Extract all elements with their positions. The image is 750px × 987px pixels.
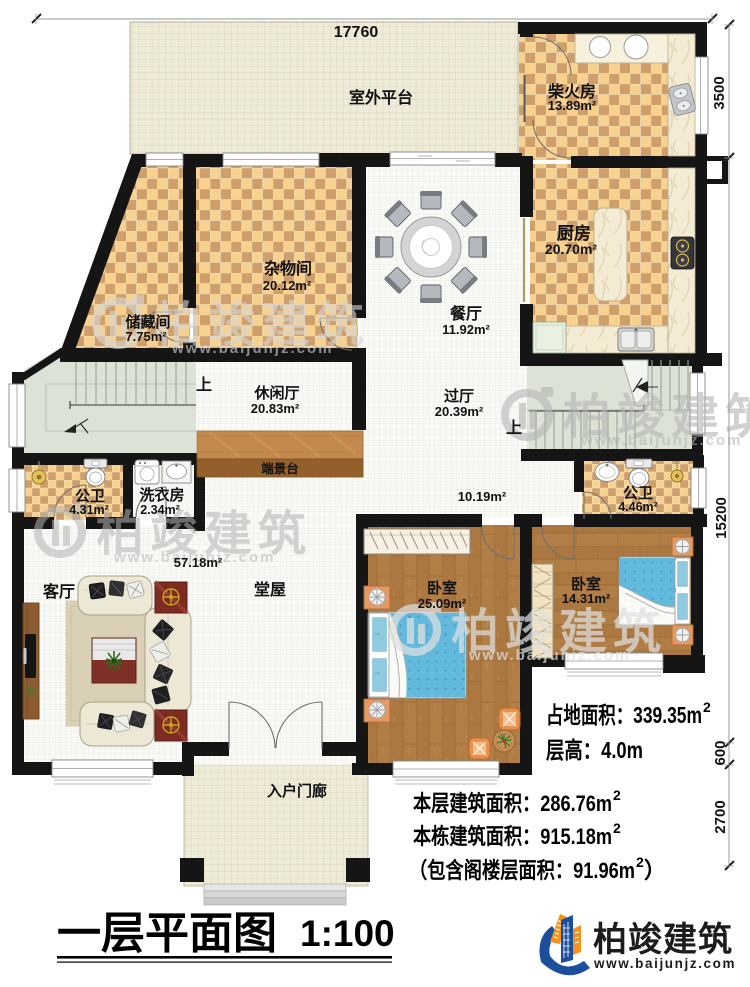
svg-text:室外平台: 室外平台	[349, 88, 413, 107]
svg-text:柏竣建筑: 柏竣建筑	[593, 920, 733, 959]
svg-text:）: ）	[644, 858, 666, 883]
svg-text:上: 上	[196, 376, 212, 394]
svg-text:本栋建筑面积：915.18m: 本栋建筑面积：915.18m	[413, 824, 612, 849]
svg-text:13.89m²: 13.89m²	[548, 98, 597, 113]
svg-text:杂物间: 杂物间	[264, 259, 312, 278]
svg-text:4.31m²: 4.31m²	[69, 503, 109, 517]
svg-text:入户门廊: 入户门廊	[267, 782, 327, 800]
svg-text:10.19m²: 10.19m²	[458, 489, 507, 504]
svg-text:1:100: 1:100	[300, 913, 395, 954]
svg-text:2: 2	[636, 854, 644, 870]
svg-text:过厅: 过厅	[444, 387, 474, 405]
svg-text:本层建筑面积：286.76m: 本层建筑面积：286.76m	[413, 791, 612, 816]
svg-text:20.12m²: 20.12m²	[263, 278, 312, 293]
svg-text:端景台: 端景台	[261, 461, 299, 476]
svg-text:14.31m²: 14.31m²	[562, 591, 611, 606]
svg-text:厨房: 厨房	[557, 223, 591, 243]
svg-text:4.46m²: 4.46m²	[618, 500, 658, 514]
svg-text:上: 上	[506, 419, 522, 437]
svg-text:15200: 15200	[713, 497, 730, 539]
svg-text:餐厅: 餐厅	[449, 304, 482, 323]
svg-text:11.92m²: 11.92m²	[442, 322, 490, 337]
svg-text:卧室: 卧室	[427, 579, 457, 597]
svg-text:17760: 17760	[334, 24, 379, 41]
svg-text:600: 600	[712, 740, 729, 765]
svg-text:占地面积：339.35m: 占地面积：339.35m	[546, 702, 702, 728]
svg-text:25.09m²: 25.09m²	[418, 596, 467, 611]
svg-text:2: 2	[703, 699, 711, 715]
svg-text:2: 2	[613, 787, 621, 803]
svg-text:一层平面图: 一层平面图	[57, 909, 277, 958]
svg-text:2700: 2700	[712, 800, 729, 833]
svg-text:层高：4.0m: 层高：4.0m	[546, 737, 643, 763]
svg-text:www.baijunjz.com: www.baijunjz.com	[593, 956, 736, 971]
svg-text:（包含阁楼层面积：91.96m: （包含阁楼层面积：91.96m	[409, 858, 635, 883]
svg-text:堂屋: 堂屋	[254, 580, 286, 599]
svg-text:20.83m²: 20.83m²	[251, 401, 300, 416]
svg-text:7.75m²: 7.75m²	[125, 329, 167, 344]
svg-text:客厅: 客厅	[43, 582, 75, 601]
svg-text:2: 2	[613, 820, 621, 836]
svg-text:洗衣房: 洗衣房	[139, 486, 184, 504]
svg-text:2.34m²: 2.34m²	[140, 503, 180, 517]
svg-text:20.70m²: 20.70m²	[545, 241, 597, 257]
svg-text:57.18m²: 57.18m²	[174, 555, 223, 570]
svg-text:20.39m²: 20.39m²	[435, 404, 484, 419]
svg-text:3500: 3500	[711, 76, 728, 109]
svg-text:休闲厅: 休闲厅	[253, 384, 299, 402]
